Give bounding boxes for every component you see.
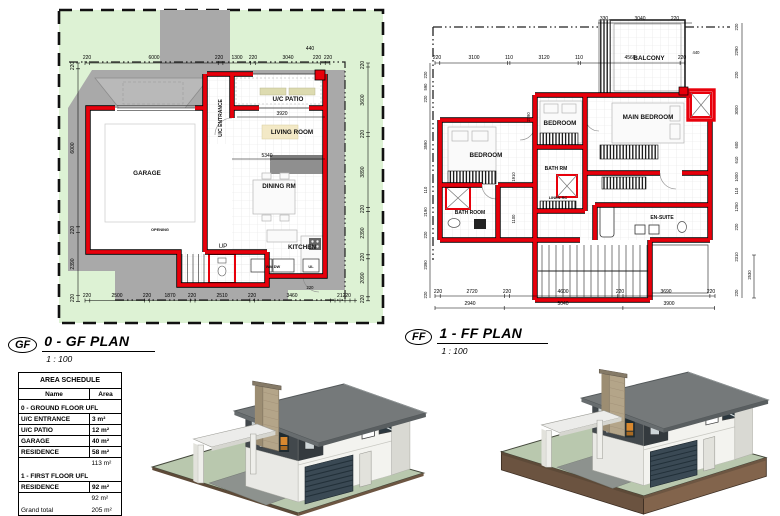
dim-label: 110 [734, 187, 739, 194]
dim-label: 2390 [423, 260, 428, 270]
schedule-subtotal: 92 m² [90, 493, 122, 504]
dim-label: 600 [734, 141, 739, 149]
dim-label: 1300 [231, 55, 242, 61]
patio-bench [260, 88, 286, 95]
gf-plan-drawing: 220 6000 220 1300 220 3040 220 220 440 2… [57, 8, 385, 325]
dim-label: 1100 [511, 214, 516, 224]
dim-label: 220 [307, 285, 315, 290]
note-wm-dw: WM DW [266, 264, 281, 269]
dim-label: 220 [433, 55, 442, 61]
dim-label: 1000 [734, 172, 739, 182]
room-label-entrance: U/C ENTRANCE [218, 98, 224, 136]
schedule-row-name: U/C ENTRANCE [19, 414, 90, 425]
dim-label: 220 [360, 295, 366, 304]
dim-label: 2290 [734, 46, 739, 56]
dim-label: 3890 [360, 166, 366, 177]
schedule-subtotal: 113 m² [90, 458, 122, 469]
dim-label: 2790 [526, 112, 531, 122]
dim-label: 220 [70, 226, 76, 235]
sofa [270, 160, 324, 174]
dim-label: 220 [313, 55, 322, 61]
gf-plan-title: 0 - GF PLAN [42, 333, 155, 352]
schedule-grand-total-label: Grand total [19, 503, 90, 516]
dim-label: 220 [671, 16, 680, 22]
house-3d-render-left [150, 355, 435, 516]
toilet [448, 219, 460, 228]
dim-label: 220 [188, 293, 197, 299]
ff-plan-drawing: 330 3040 220 220 3100 110 3120 110 4560 … [420, 5, 768, 315]
wc-fixture [649, 225, 659, 234]
dim-label: 220 [360, 253, 366, 262]
dim-label: 220 [83, 55, 92, 61]
schedule-row-name: RESIDENCE [19, 447, 90, 458]
schedule-row-area: 40 m² [90, 436, 122, 447]
schedule-col-name: Name [19, 389, 90, 400]
dim-label: 220 [423, 71, 428, 79]
dim-label: 220 [423, 95, 428, 103]
ff-plan-title: 1 - FF PLAN [437, 325, 548, 344]
schedule-row-area: 3 m² [90, 414, 122, 425]
dim-label: 2940 [464, 301, 475, 307]
schedule-row-area: 12 m² [90, 425, 122, 436]
dim-label: 4600 [557, 289, 568, 295]
dim-label: 220 [423, 291, 428, 299]
dim-label: 220 [143, 293, 152, 299]
room-label-balcony: BALCONY [633, 55, 665, 62]
dim-label: 2090 [360, 272, 366, 283]
ff-plan-badge: FF [405, 329, 432, 345]
dim-label: 1870 [164, 293, 175, 299]
dim-label: 440 [306, 46, 315, 52]
room-label-bath-room: BATH ROOM [455, 210, 485, 216]
wardrobe [602, 177, 646, 189]
dim-label: 610 [734, 156, 739, 164]
dim-label: 220 [734, 71, 739, 79]
dim-label: 2500 [111, 293, 122, 299]
gf-driveway [160, 10, 230, 72]
dim-label: 2310 [734, 252, 739, 262]
room-label-en-suite: EN-SUITE [650, 215, 674, 221]
schedule-section: 1 - FIRST FLOOR UFL [19, 468, 122, 482]
dim-label: 220 [616, 289, 625, 295]
room-label-garage: GARAGE [133, 170, 161, 177]
room-label-living: LIVING ROOM [271, 129, 313, 136]
dim-label: 5340 [261, 153, 272, 159]
dim-label: 6000 [148, 55, 159, 61]
dim-label: 220 [503, 289, 512, 295]
dim-label: 3120 [538, 55, 549, 61]
dim-label: 2530 [747, 270, 752, 280]
schedule-row-name: GARAGE [19, 436, 90, 447]
note-opening: OPENING [151, 227, 169, 232]
wc-fixture [635, 225, 645, 234]
room-label-main-bedroom: MAIN BEDROOM [623, 114, 674, 121]
patio-column [315, 70, 325, 80]
dim-label: 2390 [360, 227, 366, 238]
schedule-section: 0 - GROUND FLOOR UFL [19, 400, 122, 414]
dim-label: 220 [707, 289, 716, 295]
dim-label: 330 [600, 16, 609, 22]
dim-label: 3600 [360, 94, 366, 105]
note-ul: UL [308, 264, 314, 269]
dim-label: 220 [249, 55, 258, 61]
gf-title-block: GF 0 - GF PLAN 1 : 100 [8, 333, 155, 364]
dim-label: 1250 [734, 202, 739, 212]
dim-label: 3920 [276, 111, 287, 117]
wardrobe [540, 133, 578, 145]
dim-label: 220 [360, 205, 366, 214]
dim-label: 3100 [468, 55, 479, 61]
house-3d-render-right [495, 348, 777, 516]
dim-label: 1910 [511, 172, 516, 182]
patio-bench [289, 88, 315, 95]
dim-label: 2510 [216, 293, 227, 299]
schedule-row-name: U/C PATIO [19, 425, 90, 436]
lower-roof-outline [652, 245, 708, 293]
dim-label: 2720 [466, 289, 477, 295]
wardrobe [448, 171, 496, 184]
room-label-linen: LINEN RC [549, 195, 568, 200]
dim-label: 6000 [70, 142, 76, 153]
toilet [218, 266, 226, 276]
dim-label: 220 [423, 231, 428, 239]
schedule-row-area: 92 m² [90, 482, 122, 493]
gf-plan-badge: GF [8, 337, 37, 353]
schedule-title: AREA SCHEDULE [19, 373, 122, 389]
dim-label: 220 [360, 130, 366, 139]
dim-label: 590 [423, 83, 428, 91]
dim-label: 3690 [660, 289, 671, 295]
dim-label: 110 [505, 55, 513, 61]
room-label-patio: U/C PATIO [273, 96, 304, 103]
gf-plan-scale: 1 : 100 [42, 352, 155, 364]
dim-label: 3040 [282, 55, 293, 61]
dim-label: 21220 [337, 293, 351, 299]
balcony-screen [599, 20, 610, 95]
note-up: UP [219, 243, 228, 250]
dim-label: 3460 [286, 293, 297, 299]
dim-label: 220 [360, 61, 366, 70]
dim-label: 110 [575, 55, 583, 61]
dim-label: 5040 [557, 301, 568, 307]
dim-label: 220 [734, 23, 739, 31]
vanity [474, 219, 486, 229]
dim-label: 220 [83, 293, 92, 299]
dim-label: 220 [70, 62, 76, 71]
dim-label: 220 [734, 289, 739, 297]
drawing-sheet: 220 6000 220 1300 220 3040 220 220 440 2… [0, 0, 780, 516]
dim-label: 3000 [734, 105, 739, 115]
bathtub [600, 205, 614, 237]
dim-label: 2190 [423, 207, 428, 217]
dim-label: 220 [215, 55, 224, 61]
schedule-row-area: 58 m² [90, 447, 122, 458]
schedule-row-name [19, 458, 90, 469]
toilet [678, 222, 687, 233]
dim-label: 220 [734, 223, 739, 231]
room-label-dining: DINING RM [262, 183, 296, 190]
schedule-col-area: Area [90, 389, 122, 400]
dim-label: 3040 [634, 16, 645, 22]
room-label-kitchen: KITCHEN [288, 244, 316, 251]
room-label-bedroom: BEDROOM [544, 120, 577, 127]
dim-label: 220 [324, 55, 333, 61]
wardrobe [600, 145, 658, 159]
dim-label: 220 [434, 289, 443, 295]
dim-label: 220 [70, 294, 76, 303]
dim-label: 220 [248, 293, 257, 299]
room-label-bath-rm: BATH RM [545, 166, 568, 172]
dim-label: 3590 [423, 140, 428, 150]
dim-label: 220 [678, 55, 687, 61]
schedule-row-name [19, 493, 90, 504]
area-schedule-table: AREA SCHEDULE Name Area 0 - GROUND FLOOR… [18, 372, 122, 516]
room-label-bedroom: BEDROOM [470, 152, 503, 159]
dim-label: 3900 [663, 301, 674, 307]
schedule-grand-total-value: 205 m² [90, 503, 122, 516]
dim-label: 440 [693, 50, 701, 55]
dim-label: 2390 [70, 258, 76, 269]
schedule-row-name: RESIDENCE [19, 482, 90, 493]
dim-label: 110 [423, 186, 428, 193]
